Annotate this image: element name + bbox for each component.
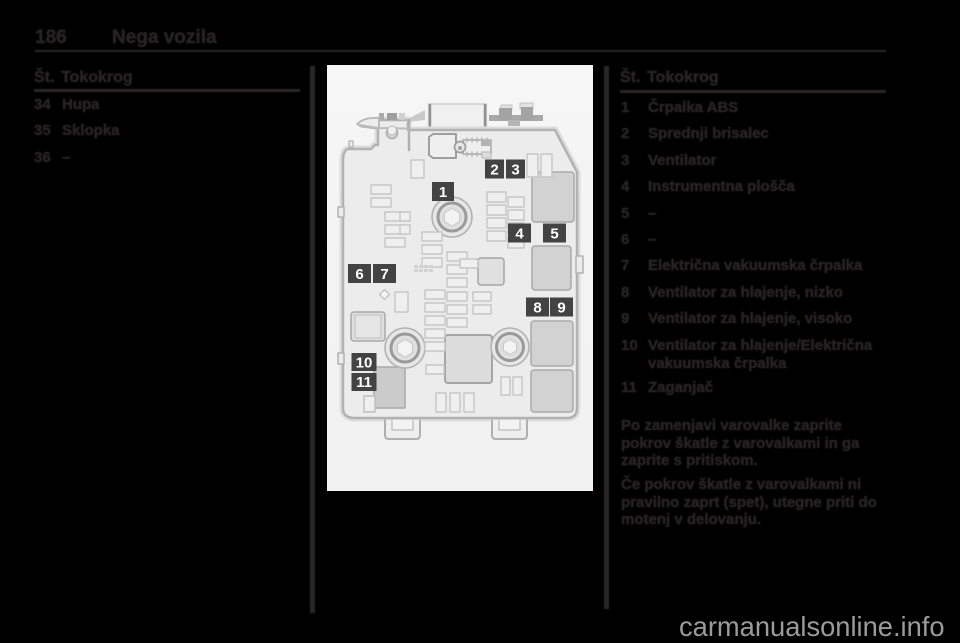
svg-text:3: 3 xyxy=(511,162,519,179)
svg-text:1: 1 xyxy=(439,184,447,201)
svg-text:6: 6 xyxy=(355,266,363,283)
svg-text:7: 7 xyxy=(380,266,388,283)
svg-text:10: 10 xyxy=(356,355,373,372)
svg-text:4: 4 xyxy=(515,226,524,243)
svg-text:9: 9 xyxy=(557,300,565,317)
svg-text:5: 5 xyxy=(550,226,558,243)
svg-text:2: 2 xyxy=(490,162,498,179)
svg-text:8: 8 xyxy=(533,300,541,317)
svg-text:11: 11 xyxy=(356,374,372,391)
